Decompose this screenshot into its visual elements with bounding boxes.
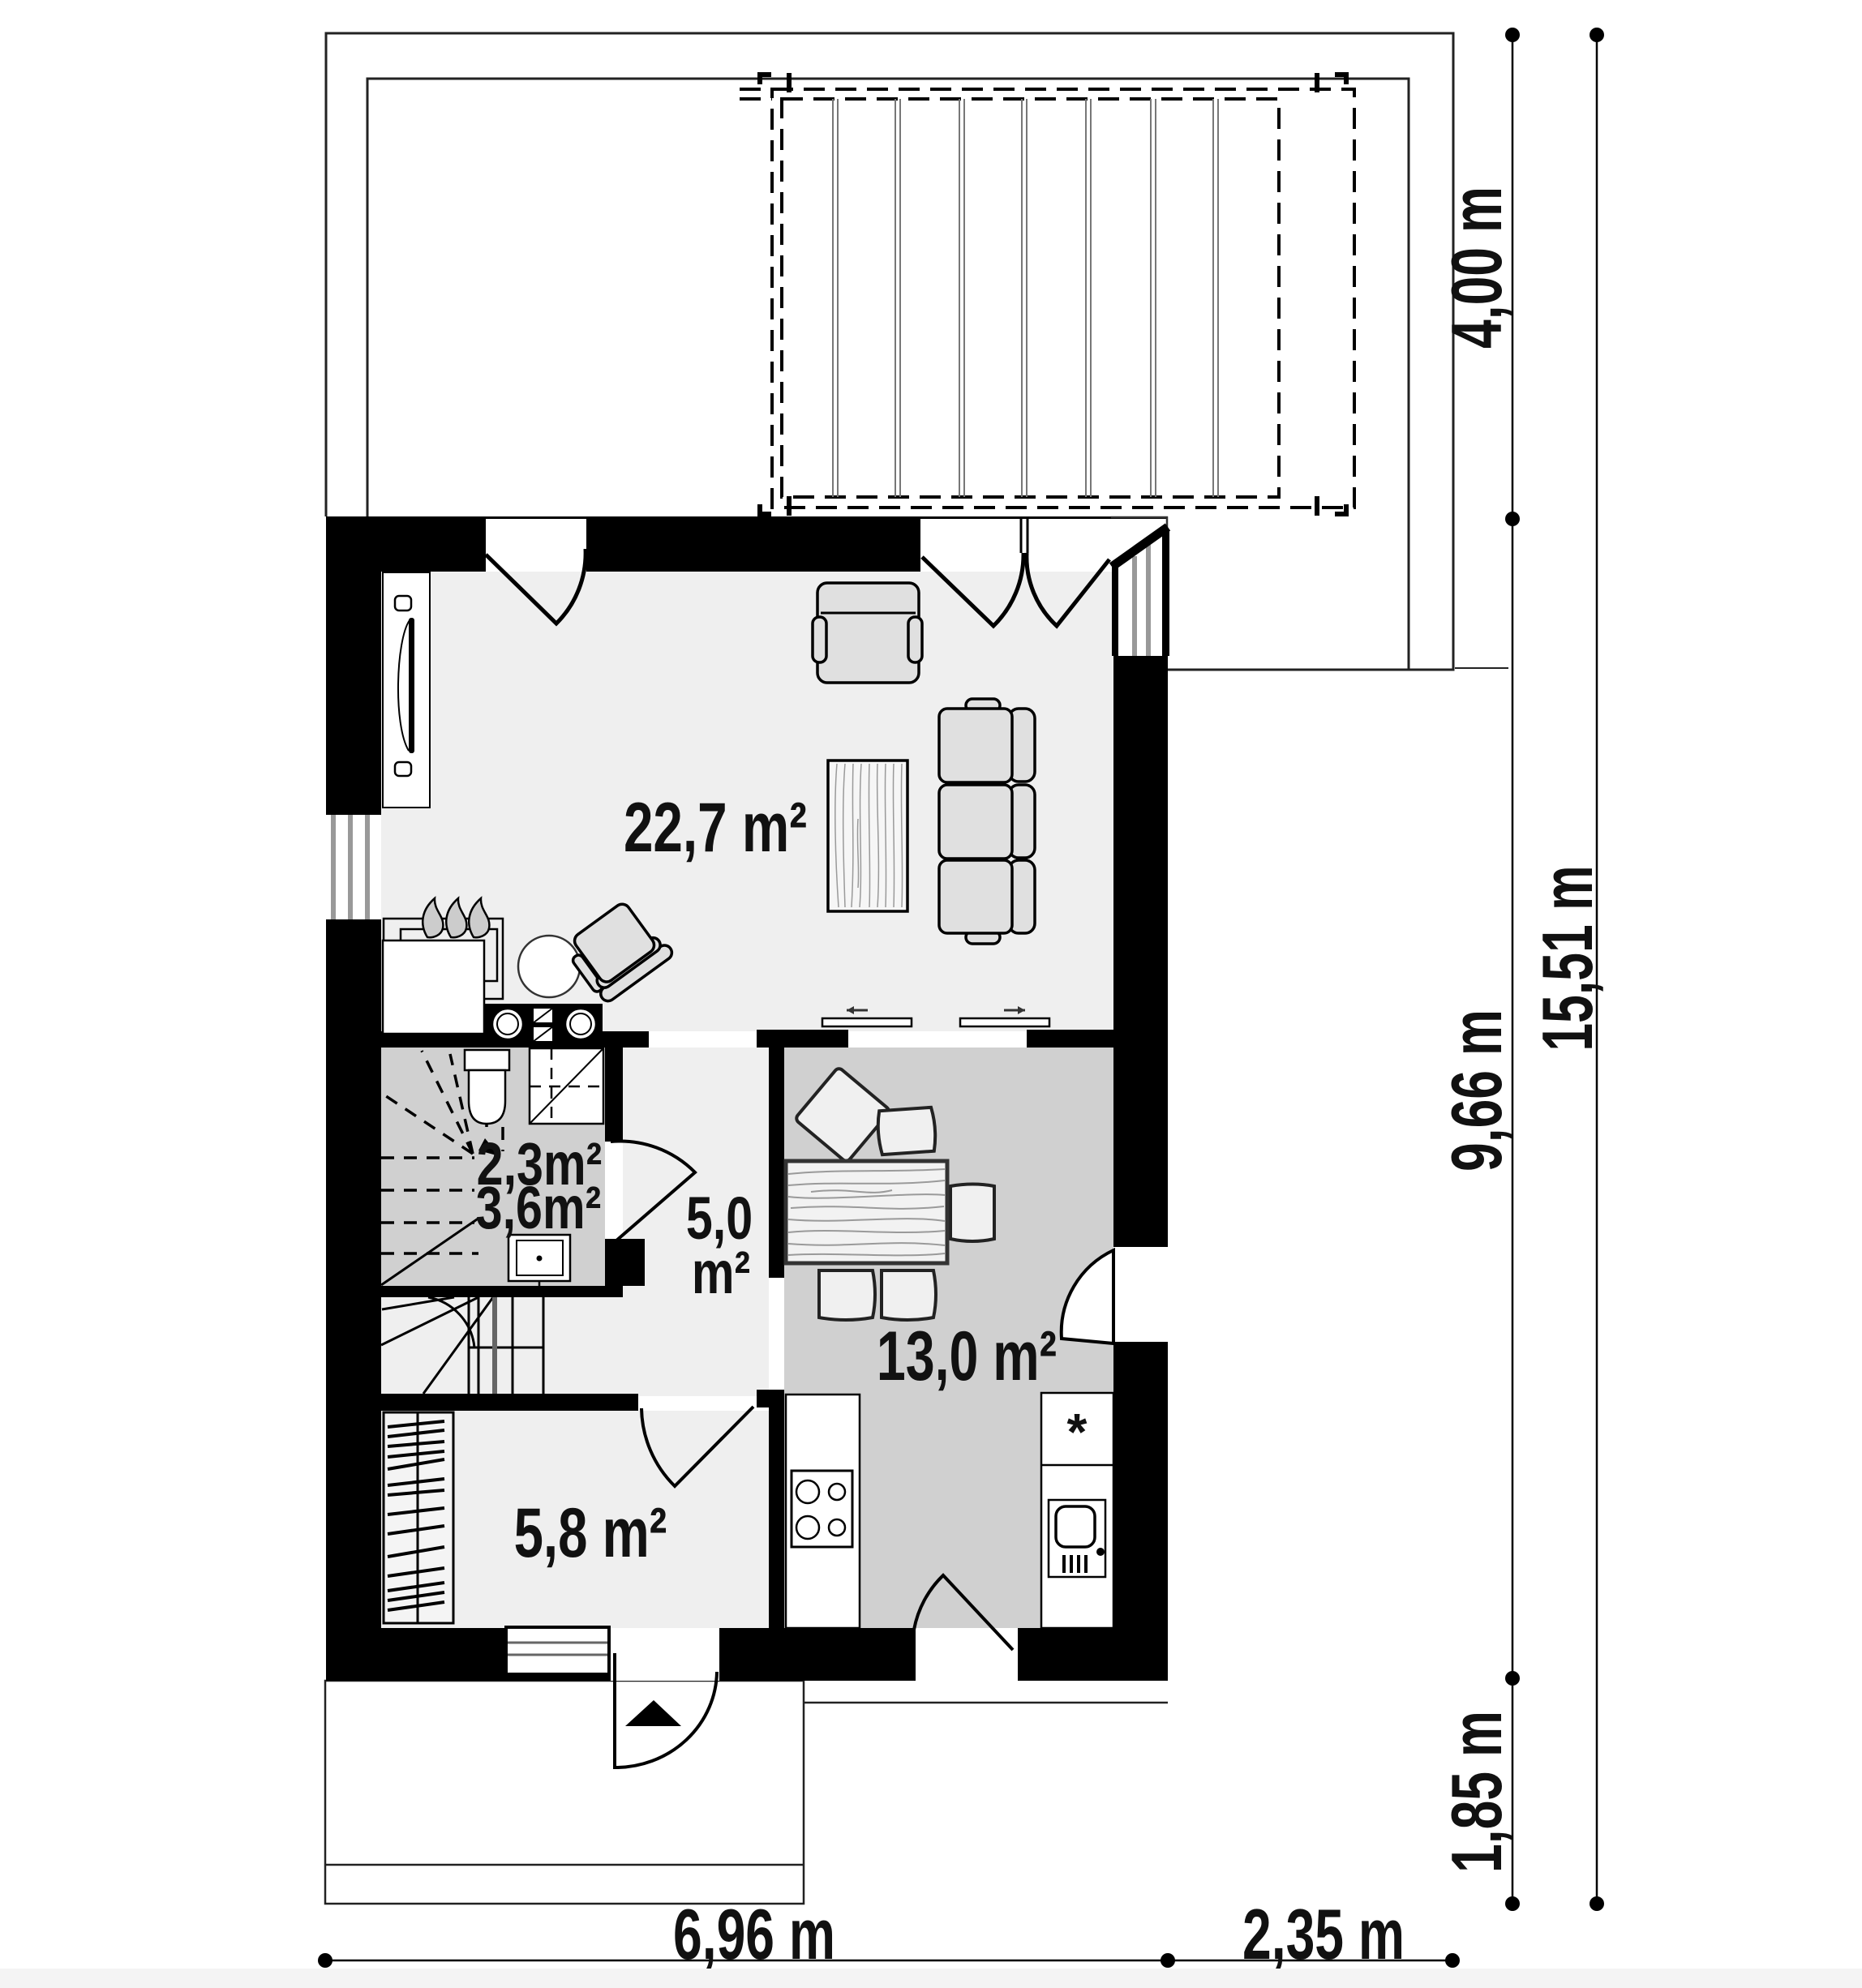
svg-text:6,96 m: 6,96 m	[673, 1895, 835, 1974]
svg-text:13,0 m²: 13,0 m²	[877, 1317, 1057, 1395]
svg-text:9,66 m: 9,66 m	[1437, 1009, 1517, 1172]
svg-text:22,7 m²: 22,7 m²	[624, 790, 807, 868]
svg-text:3,6m²: 3,6m²	[476, 1175, 602, 1242]
svg-text:1,85 m: 1,85 m	[1437, 1711, 1517, 1873]
svg-text:4,00 m: 4,00 m	[1437, 186, 1517, 349]
svg-text:15,51 m: 15,51 m	[1529, 865, 1608, 1051]
svg-text:m²: m²	[692, 1240, 750, 1307]
svg-text:*: *	[1067, 1403, 1088, 1461]
svg-text:2,35 m: 2,35 m	[1242, 1895, 1405, 1974]
svg-text:5,8 m²: 5,8 m²	[514, 1494, 667, 1572]
